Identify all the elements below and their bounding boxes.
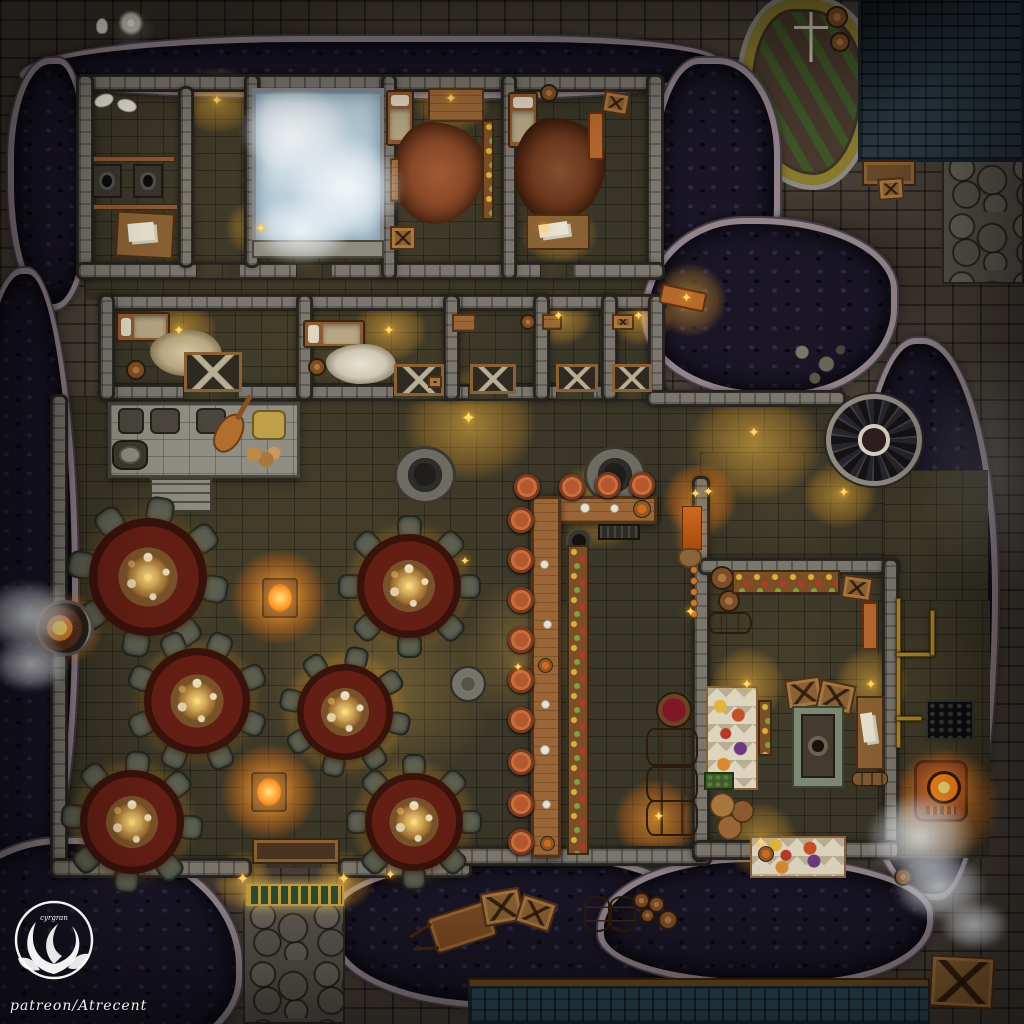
- desk: [115, 211, 175, 260]
- tavern-battle-map: cyrgran patreon/Atrecent: [0, 0, 1024, 1024]
- shelf: [732, 570, 840, 594]
- barrel-top: [540, 84, 558, 102]
- bowlfood: [633, 500, 651, 518]
- barrel-top: [126, 360, 146, 380]
- wall: [78, 264, 663, 278]
- crate: [428, 376, 442, 388]
- stool: [508, 587, 534, 613]
- dining-table: [365, 773, 463, 871]
- creator-watermark: cyrgran patreon/Atrecent: [6, 894, 102, 995]
- doormat-rug: [612, 364, 652, 392]
- stool: [559, 474, 585, 500]
- cushion: [118, 408, 144, 434]
- rug-fur: [326, 344, 396, 384]
- stool: [508, 707, 534, 733]
- stool: [514, 474, 540, 500]
- street-lamp-icon: [118, 10, 144, 36]
- spiral-staircase: [826, 394, 922, 486]
- table: [452, 314, 476, 332]
- barrel-top: [308, 358, 326, 376]
- table: [542, 314, 562, 330]
- bowlfood: [538, 658, 553, 673]
- greencrate: [704, 772, 734, 790]
- crate: [390, 226, 416, 250]
- steam: [940, 900, 1010, 950]
- stool: [508, 749, 534, 775]
- sack: [678, 548, 702, 568]
- coal: [926, 700, 974, 740]
- wall: [648, 76, 662, 278]
- rosette: [450, 666, 486, 702]
- privy: [133, 164, 163, 198]
- table: [428, 88, 484, 122]
- floor: [196, 264, 240, 278]
- steam: [252, 196, 352, 266]
- dining-table: [80, 770, 184, 874]
- wall: [180, 88, 192, 266]
- barrel-top: [826, 6, 848, 28]
- desk: [526, 214, 590, 250]
- crate: [601, 90, 630, 116]
- roof: [858, 0, 1024, 162]
- stones: [788, 336, 852, 390]
- doormat-rug: [556, 364, 598, 392]
- stool: [508, 547, 534, 573]
- bowlfood: [758, 846, 774, 862]
- bowlfood: [540, 836, 555, 851]
- barrel-top: [710, 566, 734, 590]
- dining-table: [357, 534, 461, 638]
- dining-table: [297, 664, 393, 760]
- roof2: [468, 986, 930, 1024]
- plate: [541, 700, 550, 709]
- doormat-rug: [184, 352, 242, 392]
- barrel-top: [830, 32, 850, 52]
- sackpile: [242, 444, 282, 470]
- wall: [535, 296, 548, 399]
- keg: [584, 896, 610, 932]
- pipe: [896, 598, 901, 748]
- pipe: [896, 652, 934, 657]
- mug: [690, 588, 698, 596]
- doormat: [252, 838, 340, 864]
- shelf: [758, 700, 772, 756]
- wall: [648, 392, 844, 405]
- wall: [100, 296, 113, 399]
- cushion: [150, 408, 180, 434]
- plate: [543, 620, 552, 629]
- wallwood: [93, 204, 178, 210]
- creator-credit-text: patreon/Atrecent: [10, 998, 230, 1014]
- stool: [629, 472, 655, 498]
- desk: [856, 696, 884, 770]
- privy: [92, 164, 122, 198]
- wall: [100, 296, 665, 309]
- brazier: [262, 578, 298, 618]
- doormat-rug: [470, 364, 516, 394]
- shelf: [482, 120, 494, 220]
- crate: [840, 574, 873, 602]
- pipe: [896, 716, 922, 721]
- mug: [690, 577, 698, 585]
- logpile: [852, 772, 888, 786]
- keg: [646, 766, 698, 802]
- wall: [78, 76, 92, 278]
- dining-table: [144, 648, 250, 754]
- crate: [612, 314, 634, 330]
- stool: [595, 472, 621, 498]
- stove: [801, 714, 835, 778]
- stool: [508, 627, 534, 653]
- stone-face-carving: [394, 446, 456, 504]
- cushion: [252, 410, 286, 440]
- stool: [508, 667, 534, 693]
- brazier: [251, 772, 287, 812]
- cave-rock: [642, 218, 897, 398]
- bench: [588, 112, 604, 160]
- vat: [656, 692, 692, 728]
- mug: [690, 610, 698, 618]
- stool: [508, 507, 534, 533]
- floor: [540, 264, 574, 278]
- crate: [929, 954, 996, 1009]
- flag: [942, 152, 1024, 284]
- plate: [542, 800, 551, 809]
- wall: [445, 296, 458, 399]
- basketgrp: [708, 792, 756, 840]
- mug: [690, 599, 698, 607]
- plate: [610, 504, 619, 513]
- logo-inner-text: cyrgran: [40, 914, 68, 922]
- jug: [96, 18, 108, 34]
- keg: [646, 800, 698, 836]
- pipe: [930, 610, 935, 656]
- mug: [690, 566, 698, 574]
- keg: [646, 728, 698, 766]
- crate: [877, 177, 904, 201]
- bench: [862, 602, 878, 650]
- plate: [580, 503, 590, 513]
- flag: [243, 900, 345, 1024]
- scarecrow: [794, 12, 828, 62]
- keg: [708, 612, 752, 634]
- barrel-top: [640, 908, 655, 923]
- dining-table: [89, 518, 207, 636]
- phoenix-logo-icon: cyrgran: [6, 894, 102, 990]
- drum: [112, 440, 148, 470]
- banner: [682, 506, 702, 550]
- barrel-top: [658, 910, 678, 930]
- grill: [598, 524, 640, 540]
- stool: [508, 791, 534, 817]
- shelf: [567, 545, 589, 855]
- floor: [296, 264, 332, 278]
- wallwood: [93, 156, 175, 162]
- plate: [540, 560, 549, 569]
- barrel-top: [520, 314, 536, 330]
- stool: [508, 829, 534, 855]
- entrance-gate: [246, 884, 344, 906]
- plate: [540, 745, 550, 755]
